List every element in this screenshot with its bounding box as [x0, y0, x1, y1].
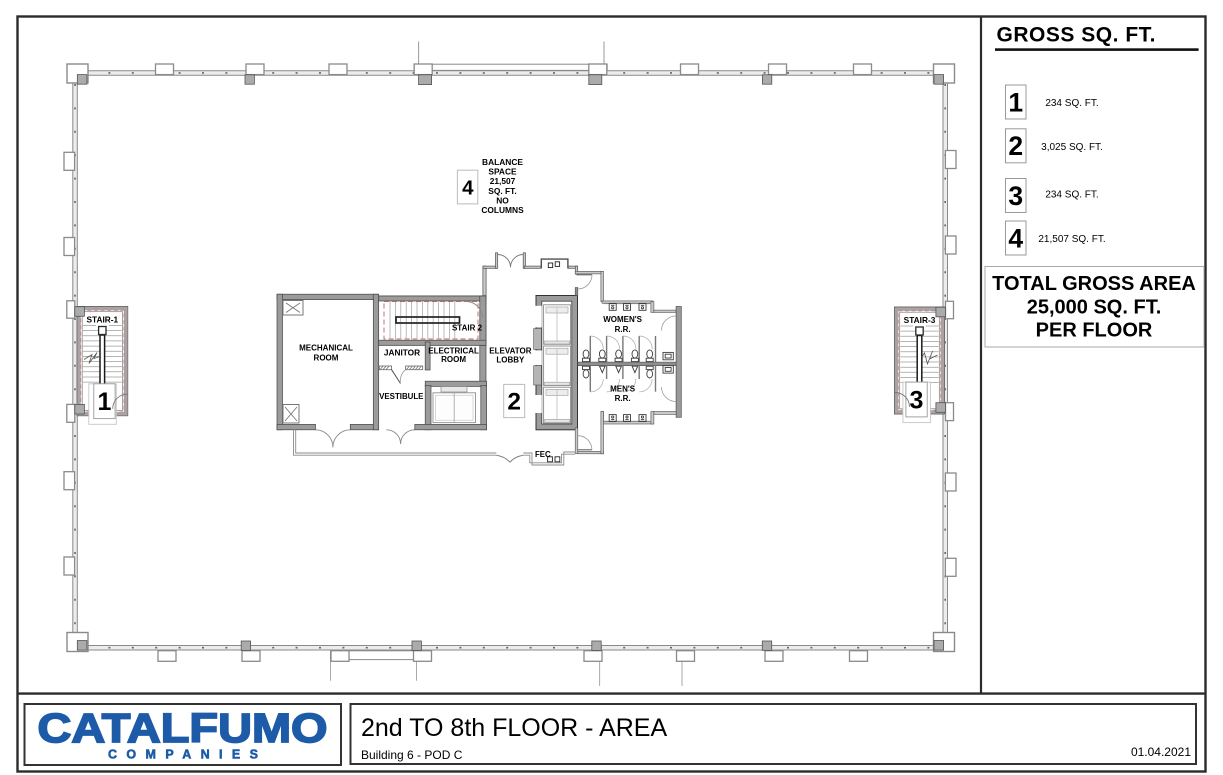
- svg-text:JANITOR: JANITOR: [384, 347, 420, 357]
- svg-text:ROOM: ROOM: [314, 353, 339, 362]
- svg-text:ROOM: ROOM: [441, 355, 466, 364]
- svg-text:1: 1: [97, 388, 111, 416]
- svg-text:COLUMNS: COLUMNS: [481, 205, 524, 215]
- svg-text:LOBBY: LOBBY: [496, 356, 525, 365]
- svg-text:STAIR-3: STAIR-3: [904, 315, 936, 325]
- svg-text:STAIR-1: STAIR-1: [86, 315, 118, 325]
- svg-text:TOTAL GROSS AREA: TOTAL GROSS AREA: [992, 273, 1196, 295]
- svg-text:Building 6 - POD C: Building 6 - POD C: [361, 748, 463, 762]
- svg-text:234 SQ. FT.: 234 SQ. FT.: [1045, 190, 1098, 201]
- svg-text:3,025 SQ. FT.: 3,025 SQ. FT.: [1041, 142, 1103, 153]
- svg-text:MECHANICAL: MECHANICAL: [299, 344, 353, 353]
- svg-text:2: 2: [507, 389, 521, 416]
- svg-text:MEN'S: MEN'S: [610, 384, 636, 393]
- svg-text:3: 3: [910, 387, 924, 415]
- svg-text:NO: NO: [496, 195, 509, 205]
- svg-text:1: 1: [1008, 87, 1023, 117]
- svg-text:COMPANIES: COMPANIES: [108, 748, 258, 762]
- svg-text:3: 3: [1008, 181, 1023, 211]
- svg-text:BALANCE: BALANCE: [482, 157, 523, 167]
- svg-text:2: 2: [1008, 131, 1023, 161]
- svg-text:SPACE: SPACE: [488, 167, 517, 177]
- svg-text:ELECTRICAL: ELECTRICAL: [428, 346, 479, 355]
- svg-text:R.R.: R.R.: [615, 394, 631, 403]
- svg-text:4: 4: [1008, 223, 1023, 253]
- svg-text:SQ. FT.: SQ. FT.: [488, 186, 516, 196]
- svg-text:01.04.2021: 01.04.2021: [1131, 745, 1191, 759]
- svg-text:GROSS SQ. FT.: GROSS SQ. FT.: [997, 24, 1156, 47]
- svg-text:25,000 SQ. FT.: 25,000 SQ. FT.: [1027, 297, 1162, 319]
- svg-text:WOMEN'S: WOMEN'S: [603, 315, 642, 324]
- svg-text:21,507: 21,507: [490, 176, 516, 186]
- svg-text:21,507 SQ. FT.: 21,507 SQ. FT.: [1038, 234, 1105, 245]
- svg-text:VESTIBULE: VESTIBULE: [379, 392, 423, 401]
- svg-text:PER FLOOR: PER FLOOR: [1036, 320, 1153, 342]
- svg-text:FEC: FEC: [535, 450, 551, 459]
- svg-text:ELEVATOR: ELEVATOR: [489, 347, 531, 356]
- svg-text:234 SQ. FT.: 234 SQ. FT.: [1045, 98, 1098, 109]
- svg-text:4: 4: [462, 177, 474, 200]
- svg-text:R.R.: R.R.: [615, 325, 631, 334]
- svg-text:CATALFUMO: CATALFUMO: [38, 705, 328, 751]
- svg-text:2nd TO 8th FLOOR - AREA: 2nd TO 8th FLOOR - AREA: [361, 714, 667, 742]
- svg-text:STAIR 2: STAIR 2: [452, 323, 483, 332]
